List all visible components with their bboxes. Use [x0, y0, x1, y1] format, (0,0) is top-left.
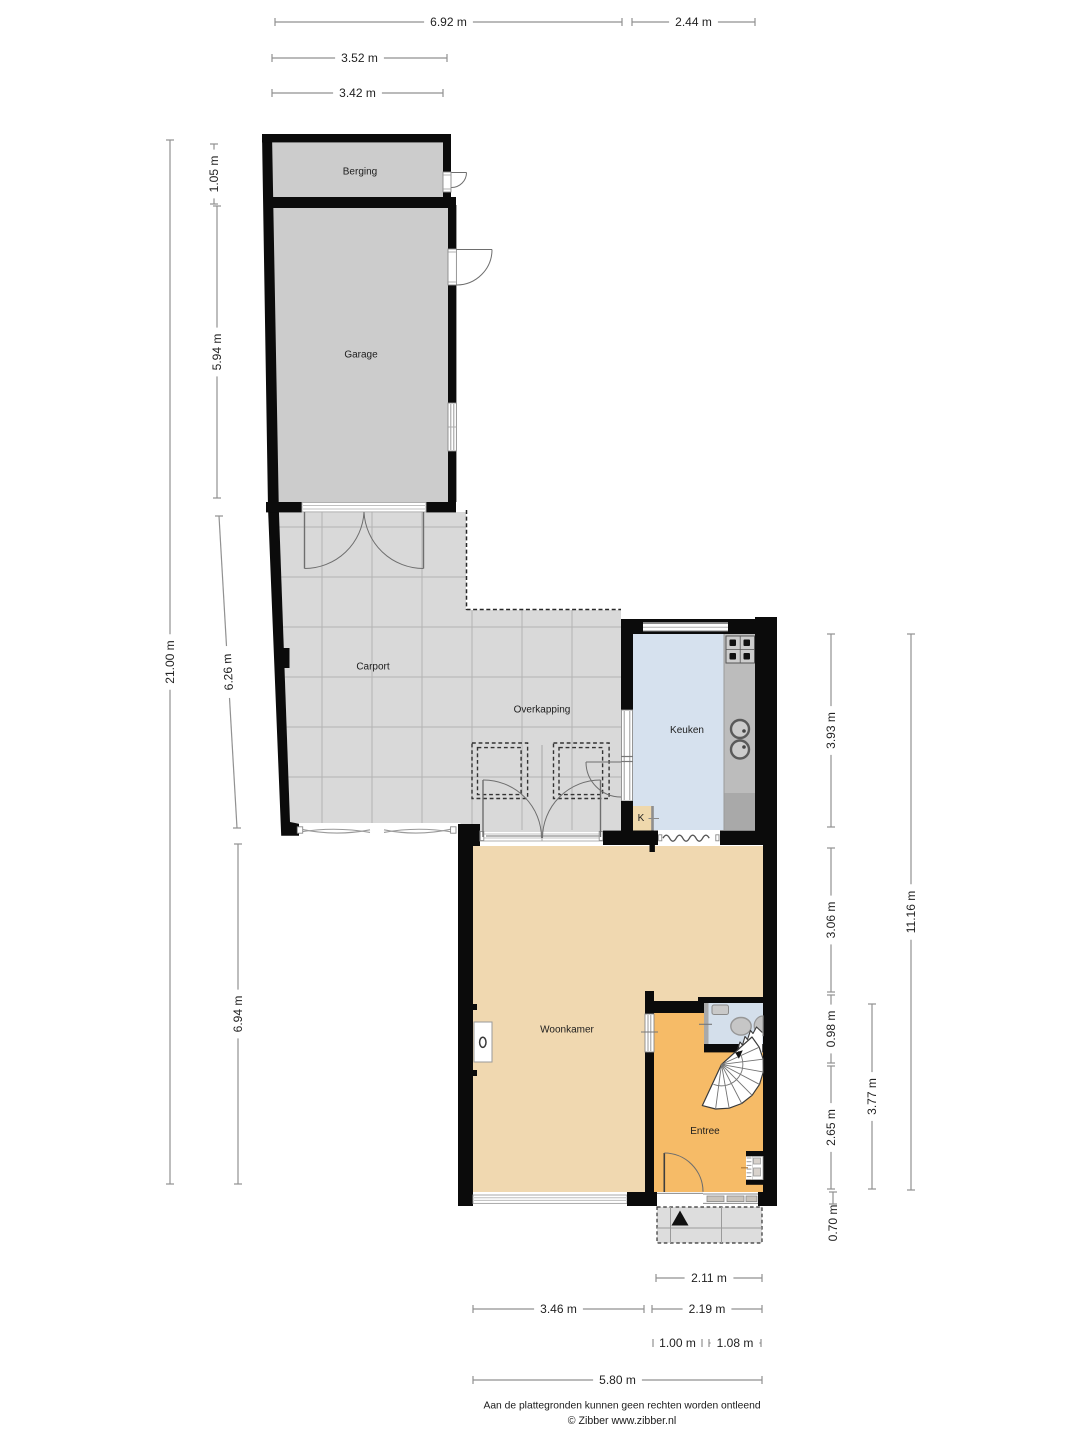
- svg-text:© Zibber www.zibber.nl: © Zibber www.zibber.nl: [568, 1415, 677, 1427]
- svg-text:2.44 m: 2.44 m: [675, 15, 712, 29]
- svg-text:Entree: Entree: [690, 1126, 720, 1137]
- svg-text:1.00 m: 1.00 m: [659, 1336, 696, 1350]
- svg-text:3.93 m: 3.93 m: [824, 712, 838, 749]
- svg-text:Keuken: Keuken: [670, 725, 704, 736]
- svg-text:6.94 m: 6.94 m: [231, 996, 245, 1033]
- svg-text:2.65 m: 2.65 m: [824, 1109, 838, 1146]
- svg-text:Woonkamer: Woonkamer: [540, 1025, 594, 1036]
- svg-text:3.52 m: 3.52 m: [341, 51, 378, 65]
- svg-text:6.92 m: 6.92 m: [430, 15, 467, 29]
- svg-text:0.98 m: 0.98 m: [824, 1011, 838, 1048]
- svg-text:Aan de plattegronden kunnen ge: Aan de plattegronden kunnen geen rechten…: [483, 1401, 760, 1412]
- svg-text:5.80 m: 5.80 m: [599, 1373, 636, 1387]
- svg-text:Overkapping: Overkapping: [514, 705, 571, 716]
- svg-text:3.06 m: 3.06 m: [824, 902, 838, 939]
- svg-text:3.46 m: 3.46 m: [540, 1302, 577, 1316]
- svg-text:1.08 m: 1.08 m: [717, 1336, 754, 1350]
- svg-text:6.26 m: 6.26 m: [220, 653, 236, 690]
- svg-text:K: K: [638, 813, 645, 824]
- svg-text:Carport: Carport: [356, 662, 390, 673]
- svg-text:3.42 m: 3.42 m: [339, 86, 376, 100]
- svg-text:0.70 m: 0.70 m: [826, 1205, 840, 1242]
- svg-text:1.05 m: 1.05 m: [207, 156, 221, 193]
- svg-text:2.11 m: 2.11 m: [691, 1271, 727, 1285]
- svg-text:11.16 m: 11.16 m: [904, 891, 918, 933]
- svg-text:3.77 m: 3.77 m: [865, 1078, 879, 1115]
- svg-text:2.19 m: 2.19 m: [689, 1302, 726, 1316]
- svg-text:21.00 m: 21.00 m: [163, 640, 177, 683]
- svg-text:Berging: Berging: [343, 167, 377, 178]
- svg-text:5.94 m: 5.94 m: [210, 334, 224, 371]
- svg-text:Garage: Garage: [344, 350, 378, 361]
